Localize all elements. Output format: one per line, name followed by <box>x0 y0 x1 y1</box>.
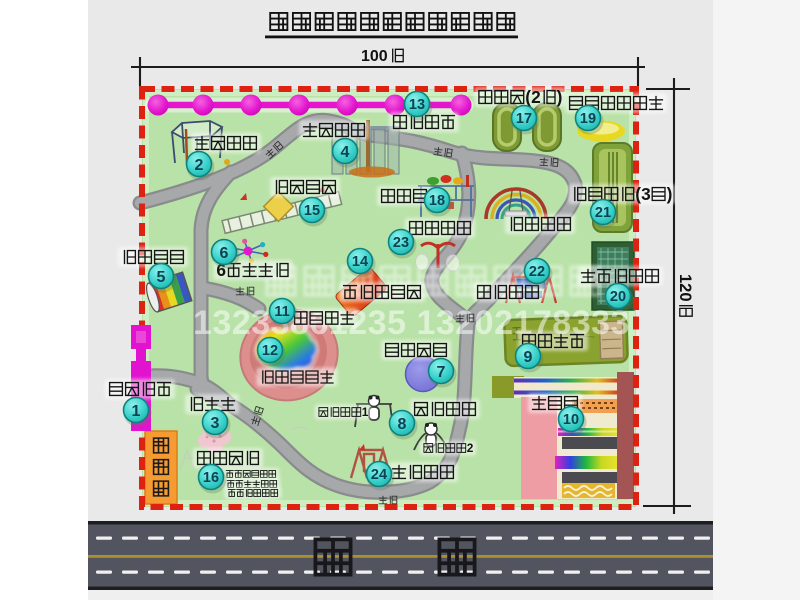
svg-text:1: 1 <box>362 405 369 419</box>
svg-text:24: 24 <box>371 467 387 483</box>
svg-text:22: 22 <box>529 264 545 280</box>
svg-text:(2: (2 <box>525 87 540 107</box>
svg-text:13: 13 <box>409 97 425 113</box>
svg-text:3: 3 <box>211 415 220 432</box>
svg-text:2: 2 <box>467 441 474 455</box>
svg-text:15: 15 <box>304 203 320 219</box>
svg-text:23: 23 <box>393 235 409 251</box>
svg-text:16: 16 <box>203 470 219 486</box>
svg-text:100: 100 <box>361 48 388 65</box>
svg-text:(3: (3 <box>635 184 650 204</box>
svg-text:120: 120 <box>676 274 694 302</box>
svg-text:6: 6 <box>220 245 229 262</box>
svg-text:8: 8 <box>398 416 407 433</box>
svg-text:2: 2 <box>195 157 204 174</box>
svg-text:5: 5 <box>157 269 166 286</box>
svg-text:17: 17 <box>516 111 532 127</box>
svg-text:1: 1 <box>132 403 141 420</box>
svg-text:4: 4 <box>341 144 350 161</box>
svg-text:10: 10 <box>563 412 579 428</box>
svg-text:18: 18 <box>429 193 445 209</box>
svg-text:): ) <box>557 87 563 107</box>
svg-text:20: 20 <box>610 289 626 305</box>
svg-text:21: 21 <box>595 205 611 221</box>
svg-text:19: 19 <box>580 111 596 127</box>
svg-text:14: 14 <box>352 254 368 270</box>
svg-text:): ) <box>667 184 673 204</box>
svg-text:12: 12 <box>262 343 278 359</box>
svg-text:11: 11 <box>274 304 289 320</box>
svg-text:9: 9 <box>524 349 533 366</box>
svg-text:7: 7 <box>437 364 446 381</box>
